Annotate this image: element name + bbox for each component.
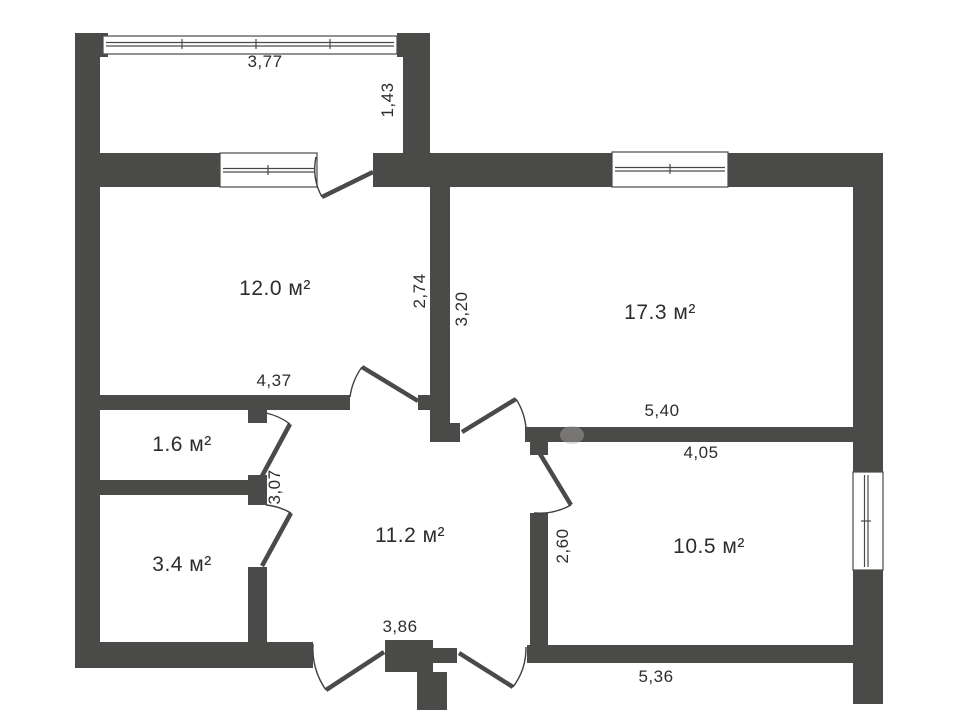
- door-entry-left: [313, 644, 384, 690]
- dim-balcony-depth: 1,43: [378, 82, 398, 117]
- room-label-34: 3.4 м²: [152, 553, 211, 577]
- doors: [262, 157, 571, 690]
- wall-closet-top-stub: [248, 410, 267, 423]
- dim-hall-depth: 3,07: [265, 469, 285, 504]
- room-label-17: 17.3 м²: [624, 301, 696, 325]
- wall-bottom-left: [75, 642, 313, 668]
- wall-upper-a: [75, 153, 220, 187]
- door-room34: [262, 505, 291, 566]
- door-entry-right: [459, 647, 526, 687]
- wall-upper-b: [373, 153, 612, 187]
- wall-room12-bottom: [75, 395, 350, 410]
- wall-divider-12-17: [430, 187, 450, 442]
- wall-hall-105: [530, 513, 548, 650]
- room-label-105: 10.5 м²: [673, 535, 745, 559]
- dim-hall-width: 3,86: [382, 617, 417, 637]
- dim-room17-width: 5,40: [644, 401, 679, 421]
- dim-room17-depth: 3,20: [452, 291, 472, 326]
- window-room12: [220, 153, 317, 187]
- wall-bottom-mid: [385, 640, 433, 672]
- door-balcony: [315, 157, 373, 197]
- watermark-blob: [560, 426, 584, 444]
- wall-bottom-step: [433, 648, 457, 663]
- door-room105: [534, 449, 571, 513]
- dim-room105-width: 4,05: [683, 443, 718, 463]
- wall-door-stub-12: [418, 395, 430, 410]
- floor-plan-drawing: [0, 0, 960, 710]
- room-label-112: 11.2 м²: [375, 524, 445, 548]
- wall-right: [853, 153, 883, 704]
- dim-room12-depth: 2,74: [410, 273, 430, 308]
- wall-balcony-right: [403, 33, 430, 155]
- floor-plan: 3,77 1,43 4,37 2,74 3,20 5,40 4,05 2,60 …: [0, 0, 960, 710]
- wall-divider-foot: [430, 423, 460, 442]
- wall-porch-stub: [417, 672, 447, 710]
- window-room17: [612, 152, 728, 187]
- door-room17: [462, 399, 526, 432]
- room-label-16: 1.6 м²: [152, 433, 211, 457]
- window-room105: [853, 472, 883, 570]
- wall-left: [75, 33, 100, 668]
- room-label-12: 12.0 м²: [239, 277, 311, 301]
- walls: [75, 33, 883, 710]
- dim-room12-width: 4,37: [256, 371, 291, 391]
- wall-closet-bottom: [248, 567, 267, 645]
- door-room12: [350, 367, 418, 401]
- wall-upper-c: [728, 153, 853, 187]
- dim-bottom-width: 5,36: [638, 667, 673, 687]
- dim-balcony-width: 3,77: [247, 52, 282, 72]
- wall-closet-divider: [75, 480, 250, 495]
- wall-bottom-right: [527, 645, 853, 663]
- dim-room105-depth: 2,60: [553, 528, 573, 563]
